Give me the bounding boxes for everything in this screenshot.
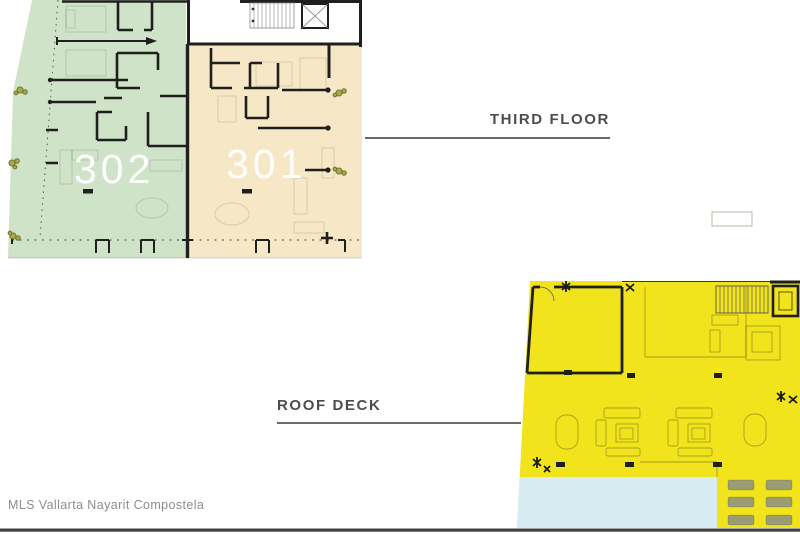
roof-deck-plan: [517, 212, 800, 528]
third-floor-plan: [8, 0, 362, 258]
unit-301-number: 301: [226, 144, 306, 185]
watermark-text: MLS Vallarta Nayarit Compostela: [8, 498, 204, 512]
roof-deck-label: ROOF DECK: [277, 397, 381, 414]
plan-graphics: [0, 0, 800, 534]
third-floor-label: THIRD FLOOR: [460, 111, 610, 128]
unit-302-number: 302: [74, 149, 154, 190]
staircase-icon: [250, 3, 294, 28]
floor-plan-sheet: 302 301 THIRD FLOOR ROOF DECK MLS Vallar…: [0, 0, 800, 534]
bottom-border-line: [0, 529, 800, 532]
elevator-icon: [302, 4, 328, 28]
pool-area: [517, 477, 717, 528]
